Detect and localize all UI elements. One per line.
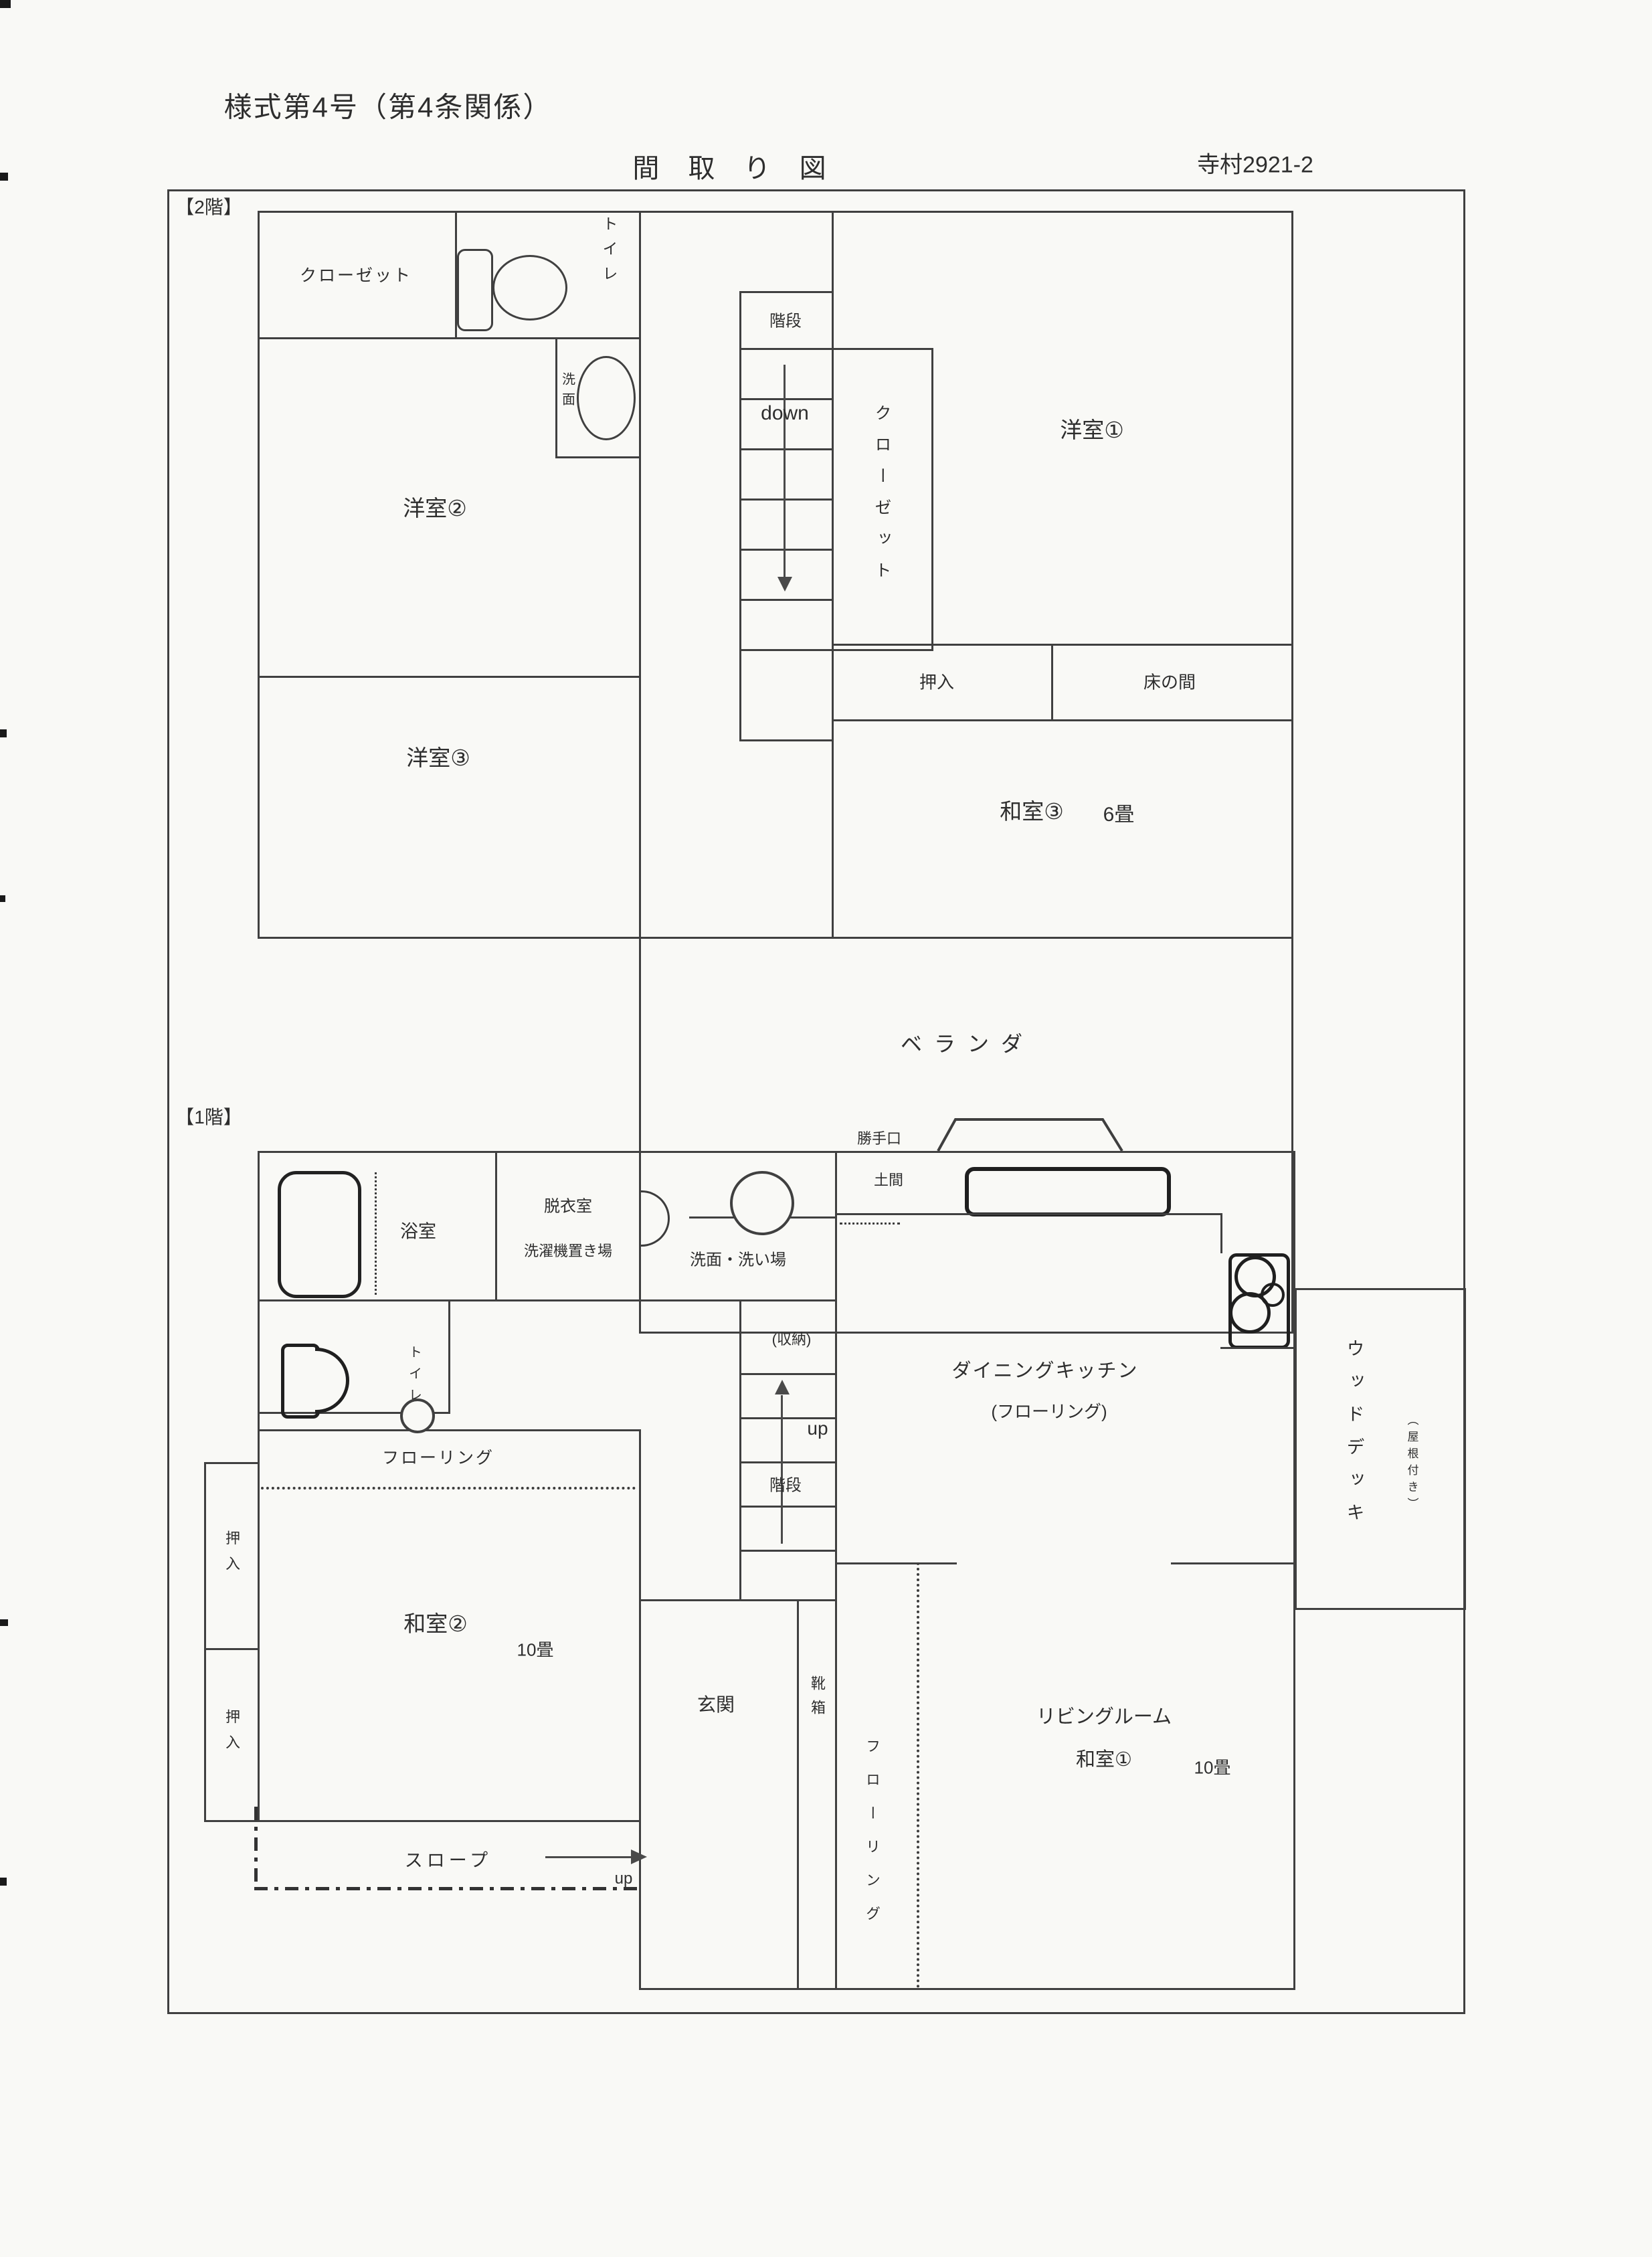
doorknob-circle-icon — [400, 1398, 435, 1433]
room-label-bath: 浴室 — [400, 1217, 436, 1243]
room-label-doma: 土間 — [874, 1168, 903, 1190]
room-label-veranda: ベランダ — [901, 1027, 1034, 1058]
room-label-flooring-strip: フローリング — [382, 1445, 494, 1469]
wall — [639, 1429, 641, 1990]
stair-step — [739, 1461, 837, 1463]
room-label-closet-2f-vertical: クローゼット — [870, 404, 894, 593]
room-label-shoebox: 靴箱 — [806, 1676, 828, 1724]
room-label-living: リビングルーム — [1036, 1701, 1172, 1729]
stairs-wall — [739, 739, 834, 741]
scan-artifact — [0, 895, 5, 902]
floor2-section-label: 【2階】 — [175, 193, 242, 219]
room-label-washitsu3: 和室③ — [1000, 794, 1064, 826]
wall — [258, 676, 641, 678]
wall — [832, 348, 933, 350]
wall — [832, 649, 933, 651]
wall — [204, 1462, 206, 1822]
stairs-down-label: down — [761, 402, 809, 425]
stairs-wall — [739, 291, 834, 293]
wall — [258, 937, 1293, 939]
room-label-tokonoma: 床の間 — [1143, 669, 1196, 694]
wall — [639, 1332, 1293, 1334]
scan-artifact — [0, 1619, 8, 1626]
wall — [1171, 1562, 1293, 1564]
stairs-wall — [739, 291, 741, 741]
bathtub-icon — [278, 1171, 361, 1298]
scanned-floor-plan-page: 様式第4号（第4条関係） 間 取 り 図 寺村2921-2 【2階】 階段 do… — [0, 0, 1652, 2257]
stair-step — [739, 398, 834, 400]
slope-up-label: up — [615, 1870, 633, 1888]
form-number: 様式第4号（第4条関係） — [224, 85, 553, 126]
wall — [832, 719, 1293, 721]
diagram-border — [167, 189, 1465, 2014]
roofed-note: （屋根付き） — [1404, 1414, 1420, 1514]
stair-step — [739, 1550, 837, 1552]
arrow-up-head-icon — [775, 1380, 790, 1394]
dotted-flooring-boundary — [261, 1487, 636, 1489]
room-label-dressing: 脱衣室 — [544, 1193, 592, 1216]
wall — [258, 1299, 837, 1301]
arrow-right-icon — [545, 1856, 632, 1858]
wall — [639, 1599, 837, 1601]
counter-line — [1220, 1347, 1293, 1349]
stairs-wall — [739, 1299, 741, 1601]
room-label-washroom: 洗面・洗い場 — [690, 1247, 786, 1270]
wall — [448, 1299, 450, 1414]
room-label-stairs-2f: 階段 — [769, 308, 802, 331]
toilet-bowl-icon — [492, 255, 567, 321]
stair-step — [739, 499, 834, 501]
stair-step — [739, 1506, 837, 1508]
room-label-wood-deck: ウッドデッキ — [1342, 1339, 1368, 1536]
stair-step — [739, 448, 834, 450]
room-label-storage: (収納) — [772, 1328, 812, 1349]
room-label-washitsu3-size: 6畳 — [1103, 798, 1135, 827]
counter-line — [1220, 1213, 1222, 1253]
wood-deck-outline — [1295, 1288, 1466, 1610]
wall — [204, 1820, 641, 1822]
wall — [258, 1429, 641, 1431]
dotted-doma-boundary — [840, 1223, 900, 1225]
room-label-oshiire-bottom: 押入 — [221, 1709, 242, 1760]
wall — [835, 1151, 837, 1990]
room-label-washitsu2: 和室② — [403, 1606, 468, 1638]
toilet-tank-icon — [281, 1344, 320, 1419]
slope-dashdot-line — [254, 1887, 637, 1890]
wall — [495, 1151, 497, 1301]
stair-step — [739, 599, 834, 601]
room-label-stairs-1f: 階段 — [769, 1472, 802, 1496]
scan-artifact — [0, 173, 8, 181]
page-title: 間 取 り 図 — [632, 147, 836, 185]
lot-number: 寺村2921-2 — [1197, 147, 1313, 179]
wall — [832, 644, 1293, 646]
room-label-katteguchi: 勝手口 — [857, 1127, 901, 1148]
wall — [931, 348, 933, 651]
dotted-partition — [917, 1562, 919, 1988]
wall — [258, 1151, 260, 1820]
stair-step — [739, 549, 834, 551]
wall — [835, 1562, 957, 1564]
wall — [832, 211, 834, 939]
room-label-yoshitsu2: 洋室② — [403, 490, 467, 523]
room-label-washstand-2f: 洗面 — [558, 372, 577, 412]
wall — [204, 1648, 260, 1650]
slope-dashdot-line — [254, 1807, 258, 1889]
counter-line — [835, 1213, 1220, 1215]
stair-step — [739, 649, 834, 651]
room-label-dk: ダイニングキッチン — [951, 1355, 1138, 1383]
wall — [555, 456, 641, 458]
scan-artifact — [0, 0, 11, 8]
wall — [1051, 644, 1053, 721]
slope-label: スロープ — [405, 1846, 492, 1872]
room-label-washitsu2-size: 10畳 — [517, 1637, 554, 1661]
room-label-yoshitsu1: 洋室① — [1060, 412, 1124, 444]
wall — [258, 211, 1293, 213]
washbasin-oval-icon — [577, 356, 636, 440]
scan-artifact — [0, 729, 7, 737]
scan-artifact — [0, 1878, 7, 1886]
dotted-partition — [375, 1172, 377, 1295]
stairs-up-label: up — [807, 1418, 828, 1439]
stair-step — [739, 348, 834, 350]
arrow-up-icon — [781, 1395, 783, 1544]
room-label-flooring-vertical: フローリング — [861, 1738, 883, 1939]
room-label-dk-flooring: (フローリング) — [991, 1398, 1107, 1423]
room-label-oshiire-top: 押入 — [221, 1530, 242, 1581]
wall — [639, 1988, 1295, 1990]
washbasin-circle-icon — [730, 1171, 794, 1235]
room-label-genkan: 玄関 — [697, 1690, 735, 1717]
arrow-down-head-icon — [777, 577, 792, 592]
floor1-section-label: 【1階】 — [175, 1103, 242, 1130]
wall — [204, 1462, 260, 1464]
kitchen-counter-icon — [965, 1167, 1171, 1216]
stair-step — [739, 1373, 837, 1375]
room-label-living-size: 10畳 — [1194, 1754, 1231, 1779]
stove-burner-small-icon — [1261, 1283, 1285, 1307]
room-label-washer-space: 洗濯機置き場 — [524, 1239, 612, 1261]
wall — [258, 211, 260, 939]
room-label-living-washitsu1: 和室① — [1076, 1744, 1132, 1772]
back-door-trapezoid-icon — [937, 1117, 1124, 1152]
wall — [258, 337, 641, 339]
wall — [258, 1151, 1295, 1153]
arrow-down-icon — [784, 365, 786, 577]
arrow-right-head-icon — [631, 1849, 647, 1864]
room-label-toilet-2f: トイレ — [598, 216, 620, 290]
wall — [797, 1599, 799, 1990]
room-label-closet-2f: クローゼット — [300, 262, 412, 286]
room-label-yoshitsu3: 洋室③ — [406, 740, 470, 772]
room-label-oshiire-2f: 押入 — [919, 669, 954, 694]
toilet-tank-icon — [457, 249, 493, 331]
